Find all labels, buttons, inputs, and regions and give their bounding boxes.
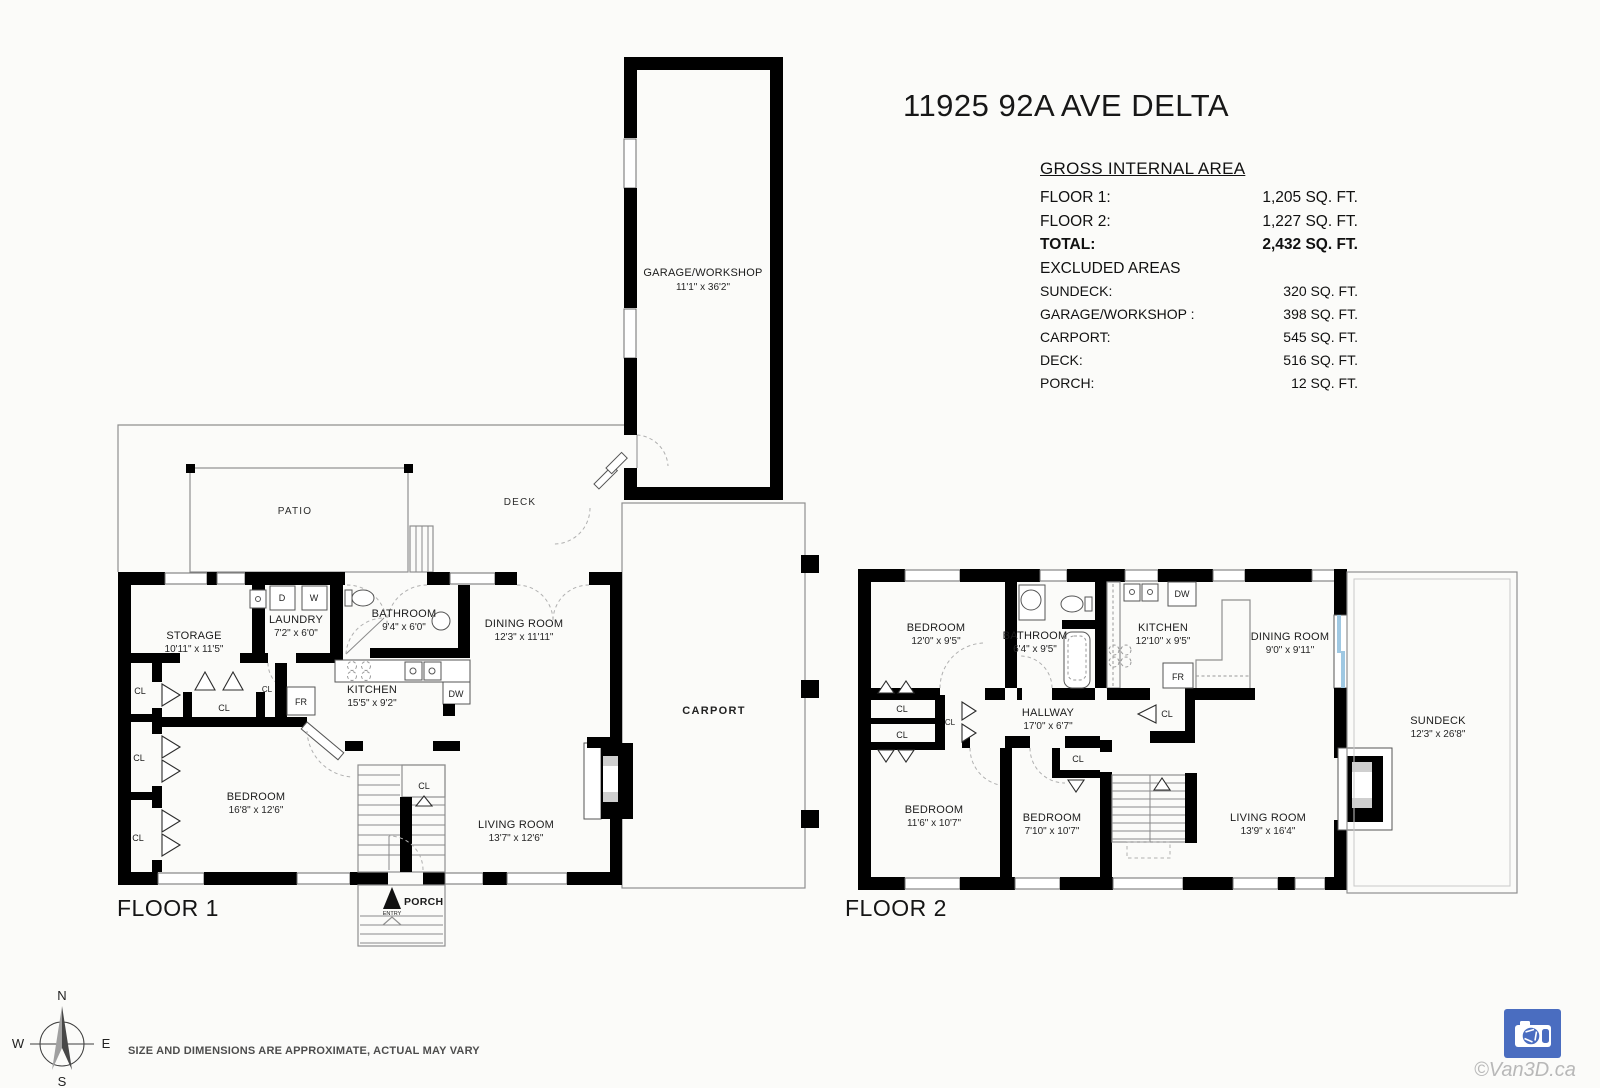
compass-e: E xyxy=(102,1036,111,1051)
closet-label: CL xyxy=(1161,709,1173,719)
area-row-value: 398 SQ. FT. xyxy=(1283,303,1358,326)
window xyxy=(450,573,495,584)
bedroom-door xyxy=(301,722,344,760)
area-row-label: TOTAL: xyxy=(1040,233,1095,257)
window xyxy=(217,573,245,584)
area-row-excluded-heading: EXCLUDED AREAS xyxy=(1040,257,1358,281)
fridge-label-f2: FR xyxy=(1172,672,1184,682)
fridge-label-f1: FR xyxy=(295,697,307,707)
room-label-porch: PORCH xyxy=(404,896,443,908)
window xyxy=(1125,570,1158,581)
room-dims-storage: 10'11" x 11'5" xyxy=(165,644,224,655)
area-row-value: 545 SQ. FT. xyxy=(1283,326,1358,349)
room-dims-bedroom-f1: 16'8" x 12'6" xyxy=(229,805,284,816)
floor1-plan: STORAGE 10'11" x 11'5" LAUNDRY 7'2" x 6'… xyxy=(118,572,633,946)
toilet-f2 xyxy=(1061,596,1083,612)
compass-needle-east-half xyxy=(62,1006,72,1070)
room-label-storage: STORAGE xyxy=(166,630,221,642)
area-row-value: 12 SQ. FT. xyxy=(1291,372,1358,395)
area-table-heading: GROSS INTERNAL AREA xyxy=(1040,159,1358,179)
garage-window xyxy=(624,309,636,358)
room-dims-garage: 11'1" x 36'2" xyxy=(676,282,731,293)
window xyxy=(1233,878,1278,889)
room-dims-kitchen-f1: 15'5" x 9'2" xyxy=(347,698,397,709)
room-dims-sundeck: 12'3" x 26'8" xyxy=(1411,729,1466,740)
kitchen-peninsula xyxy=(1196,600,1250,688)
room-label-kitchen-f1: KITCHEN xyxy=(347,684,397,696)
area-row-label: PORCH: xyxy=(1040,372,1094,395)
window xyxy=(165,573,207,584)
window xyxy=(1113,878,1183,889)
window xyxy=(1213,570,1245,581)
compass-rose: N W E S xyxy=(6,984,118,1088)
window xyxy=(297,873,350,884)
bathroom-sink-f2 xyxy=(1021,590,1041,610)
room-dims-laundry: 7'2" x 6'0" xyxy=(274,628,318,639)
room-label-hallway: HALLWAY xyxy=(1022,707,1075,719)
area-row-value: 2,432 SQ. FT. xyxy=(1262,233,1358,257)
van3d-logo xyxy=(1504,1009,1561,1058)
garage-workshop: GARAGE/WORKSHOP 11'1" x 36'2" xyxy=(606,57,783,500)
room-dims-bathroom-f2: 6'4" x 9'5" xyxy=(1013,644,1057,655)
room-dims-dining-f2: 9'0" x 9'11" xyxy=(1266,645,1315,656)
area-row: PORCH: 12 SQ. FT. xyxy=(1040,372,1358,395)
floor1-label: FLOOR 1 xyxy=(117,895,219,922)
room-label-dining-f2: DINING ROOM xyxy=(1251,631,1330,643)
window xyxy=(445,873,483,884)
sundeck: SUNDECK 12'3" x 26'8" xyxy=(1347,572,1517,893)
camera-icon xyxy=(1512,1016,1554,1052)
window xyxy=(1040,570,1067,581)
window xyxy=(158,873,204,884)
area-row: DECK: 516 SQ. FT. xyxy=(1040,349,1358,372)
room-label-bedroom2: BEDROOM xyxy=(905,804,964,816)
fireplace xyxy=(584,743,601,819)
page-title: 11925 92A AVE DELTA xyxy=(903,88,1229,124)
room-label-sundeck: SUNDECK xyxy=(1410,715,1466,727)
window xyxy=(905,878,960,889)
floorplan-page: PATIO DECK CARPORT GARAGE/WORKSHOP 11'1"… xyxy=(0,0,1600,1088)
dishwasher-label-f1: DW xyxy=(449,689,464,699)
room-label-patio: PATIO xyxy=(278,506,313,517)
compass-n: N xyxy=(57,988,66,1003)
disclaimer-text: SIZE AND DIMENSIONS ARE APPROXIMATE, ACT… xyxy=(128,1045,480,1057)
closet-label: CL xyxy=(896,730,908,740)
closet-label: CL xyxy=(262,685,273,694)
carport-post xyxy=(801,810,819,828)
room-label-carport: CARPORT xyxy=(682,705,746,717)
room-label-dining-f1: DINING ROOM xyxy=(485,618,564,630)
compass-w: W xyxy=(12,1036,25,1051)
closet-label: CL xyxy=(218,703,230,713)
room-label-garage: GARAGE/WORKSHOP xyxy=(643,267,762,279)
room-label-bedroom3: BEDROOM xyxy=(1023,812,1082,824)
area-row-label: FLOOR 2: xyxy=(1040,210,1111,234)
closet-label: CL xyxy=(134,686,146,696)
room-dims-bedroom2: 11'6" x 10'7" xyxy=(907,818,962,829)
entry-label: ENTRY xyxy=(383,911,402,917)
area-row-label: EXCLUDED AREAS xyxy=(1040,257,1180,281)
floor2-plan: BEDROOM 12'0" x 9'5" BATHROOM 6'4" x 9'5… xyxy=(858,569,1392,890)
floor2-label: FLOOR 2 xyxy=(845,895,947,922)
room-dims-living-f1: 13'7" x 12'6" xyxy=(489,833,544,844)
watermark-text: ©Van3D.ca xyxy=(1474,1059,1576,1082)
area-row-label: SUNDECK: xyxy=(1040,280,1112,303)
carport-post xyxy=(801,680,819,698)
washer-label: W xyxy=(310,593,319,603)
room-dims-bedroom3: 7'10" x 10'7" xyxy=(1025,826,1080,837)
window xyxy=(905,570,960,581)
room-dims-bathroom-f1: 9'4" x 6'0" xyxy=(382,622,426,633)
area-row-value: 1,205 SQ. FT. xyxy=(1262,186,1358,210)
closet-label: CL xyxy=(1072,754,1084,764)
room-label-bedroom-f1: BEDROOM xyxy=(227,791,286,803)
garage-window xyxy=(624,139,636,188)
window xyxy=(507,873,567,884)
dryer-label: D xyxy=(279,593,286,603)
closet-label: CL xyxy=(945,718,956,727)
closet-label: CL xyxy=(133,753,145,763)
area-row: FLOOR 2: 1,227 SQ. FT. xyxy=(1040,210,1358,234)
area-row: FLOOR 1: 1,205 SQ. FT. xyxy=(1040,186,1358,210)
area-row-value: 320 SQ. FT. xyxy=(1283,280,1358,303)
carport-outline xyxy=(622,503,805,888)
deck-outline xyxy=(118,425,624,572)
window xyxy=(1015,878,1060,889)
window xyxy=(1295,878,1325,889)
area-row: GARAGE/WORKSHOP : 398 SQ. FT. xyxy=(1040,303,1358,326)
area-row-total: TOTAL: 2,432 SQ. FT. xyxy=(1040,233,1358,257)
room-label-living-f1: LIVING ROOM xyxy=(478,819,554,831)
area-row-label: CARPORT: xyxy=(1040,326,1111,349)
closet-label: CL xyxy=(418,781,430,791)
area-row: SUNDECK: 320 SQ. FT. xyxy=(1040,280,1358,303)
room-label-laundry: LAUNDRY xyxy=(269,614,324,626)
room-label-bathroom-f1: BATHROOM xyxy=(372,608,437,620)
dishwasher-label-f2: DW xyxy=(1175,589,1190,599)
entry-arrow xyxy=(383,887,401,909)
room-label-bathroom-f2: BATHROOM xyxy=(1003,630,1068,642)
area-row-label: DECK: xyxy=(1040,349,1083,372)
area-row-label: FLOOR 1: xyxy=(1040,186,1111,210)
area-table: GROSS INTERNAL AREA FLOOR 1: 1,205 SQ. F… xyxy=(1040,159,1358,395)
room-label-living-f2: LIVING ROOM xyxy=(1230,812,1306,824)
compass-needle-west-half xyxy=(52,1006,62,1070)
patio-outline xyxy=(190,468,408,572)
room-label-deck: DECK xyxy=(504,497,537,508)
room-dims-hallway: 17'0" x 6'7" xyxy=(1023,721,1073,732)
room-label-bedroom1: BEDROOM xyxy=(907,622,966,634)
carport-post xyxy=(801,555,819,573)
room-dims-dining-f1: 12'3" x 11'11" xyxy=(495,632,554,643)
toilet xyxy=(345,590,352,606)
area-row-value: 516 SQ. FT. xyxy=(1283,349,1358,372)
room-label-kitchen-f2: KITCHEN xyxy=(1138,622,1188,634)
area-row-value: 1,227 SQ. FT. xyxy=(1262,210,1358,234)
room-dims-kitchen-f2: 12'10" x 9'5" xyxy=(1136,636,1191,647)
room-dims-living-f2: 13'9" x 16'4" xyxy=(1241,826,1296,837)
closet-label: CL xyxy=(896,704,908,714)
room-dims-bedroom1: 12'0" x 9'5" xyxy=(911,636,961,647)
compass-s: S xyxy=(58,1074,67,1088)
area-row: CARPORT: 545 SQ. FT. xyxy=(1040,326,1358,349)
area-row-label: GARAGE/WORKSHOP : xyxy=(1040,303,1195,326)
floorplan-drawing: PATIO DECK CARPORT GARAGE/WORKSHOP 11'1"… xyxy=(0,0,1600,1088)
closet-label: CL xyxy=(132,833,144,843)
